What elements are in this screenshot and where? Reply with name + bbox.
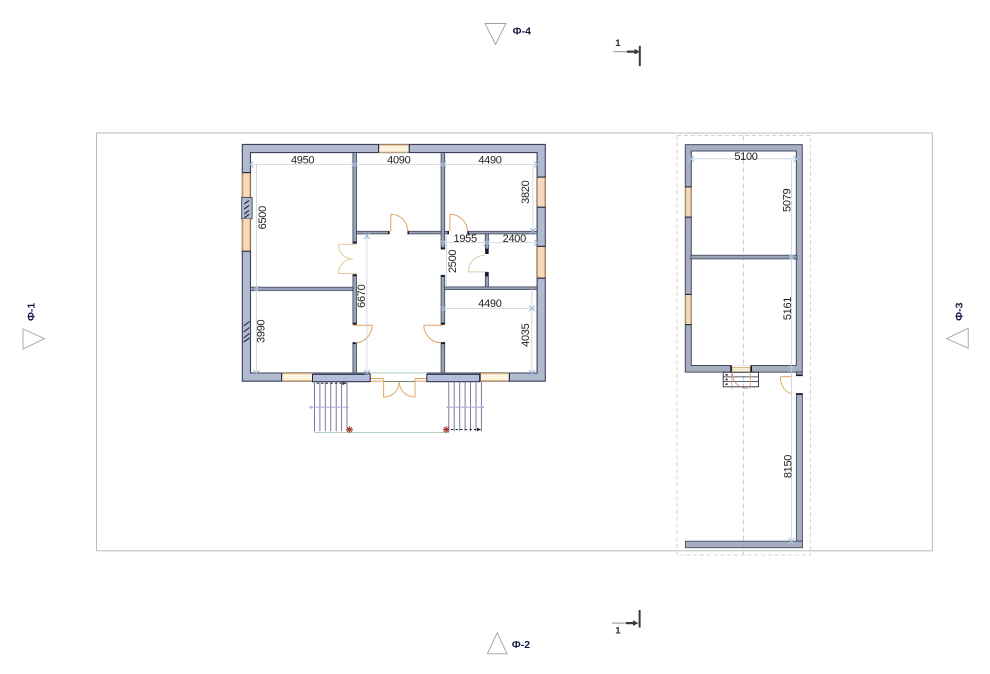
svg-text:1: 1 <box>615 625 621 636</box>
svg-text:Ф-3: Ф-3 <box>953 302 965 320</box>
svg-text:Ф-2: Ф-2 <box>512 639 530 651</box>
svg-text:1955: 1955 <box>454 233 477 245</box>
svg-text:6670: 6670 <box>356 284 368 307</box>
svg-text:5079: 5079 <box>781 188 793 211</box>
svg-text:Ф-4: Ф-4 <box>513 25 531 37</box>
svg-text:1: 1 <box>615 38 621 49</box>
svg-text:Ф-1: Ф-1 <box>26 303 38 321</box>
svg-text:8150: 8150 <box>782 455 794 478</box>
svg-text:3990: 3990 <box>256 319 268 342</box>
svg-text:4035: 4035 <box>520 323 532 346</box>
svg-text:6500: 6500 <box>257 206 269 229</box>
svg-text:3820: 3820 <box>520 180 532 203</box>
svg-text:4950: 4950 <box>291 155 314 167</box>
svg-text:4490: 4490 <box>478 298 501 310</box>
svg-text:2400: 2400 <box>503 233 526 245</box>
svg-text:4490: 4490 <box>478 155 501 167</box>
svg-text:2500: 2500 <box>447 250 459 273</box>
svg-text:5161: 5161 <box>782 297 794 320</box>
svg-text:4090: 4090 <box>387 155 410 167</box>
svg-text:5100: 5100 <box>734 151 757 163</box>
